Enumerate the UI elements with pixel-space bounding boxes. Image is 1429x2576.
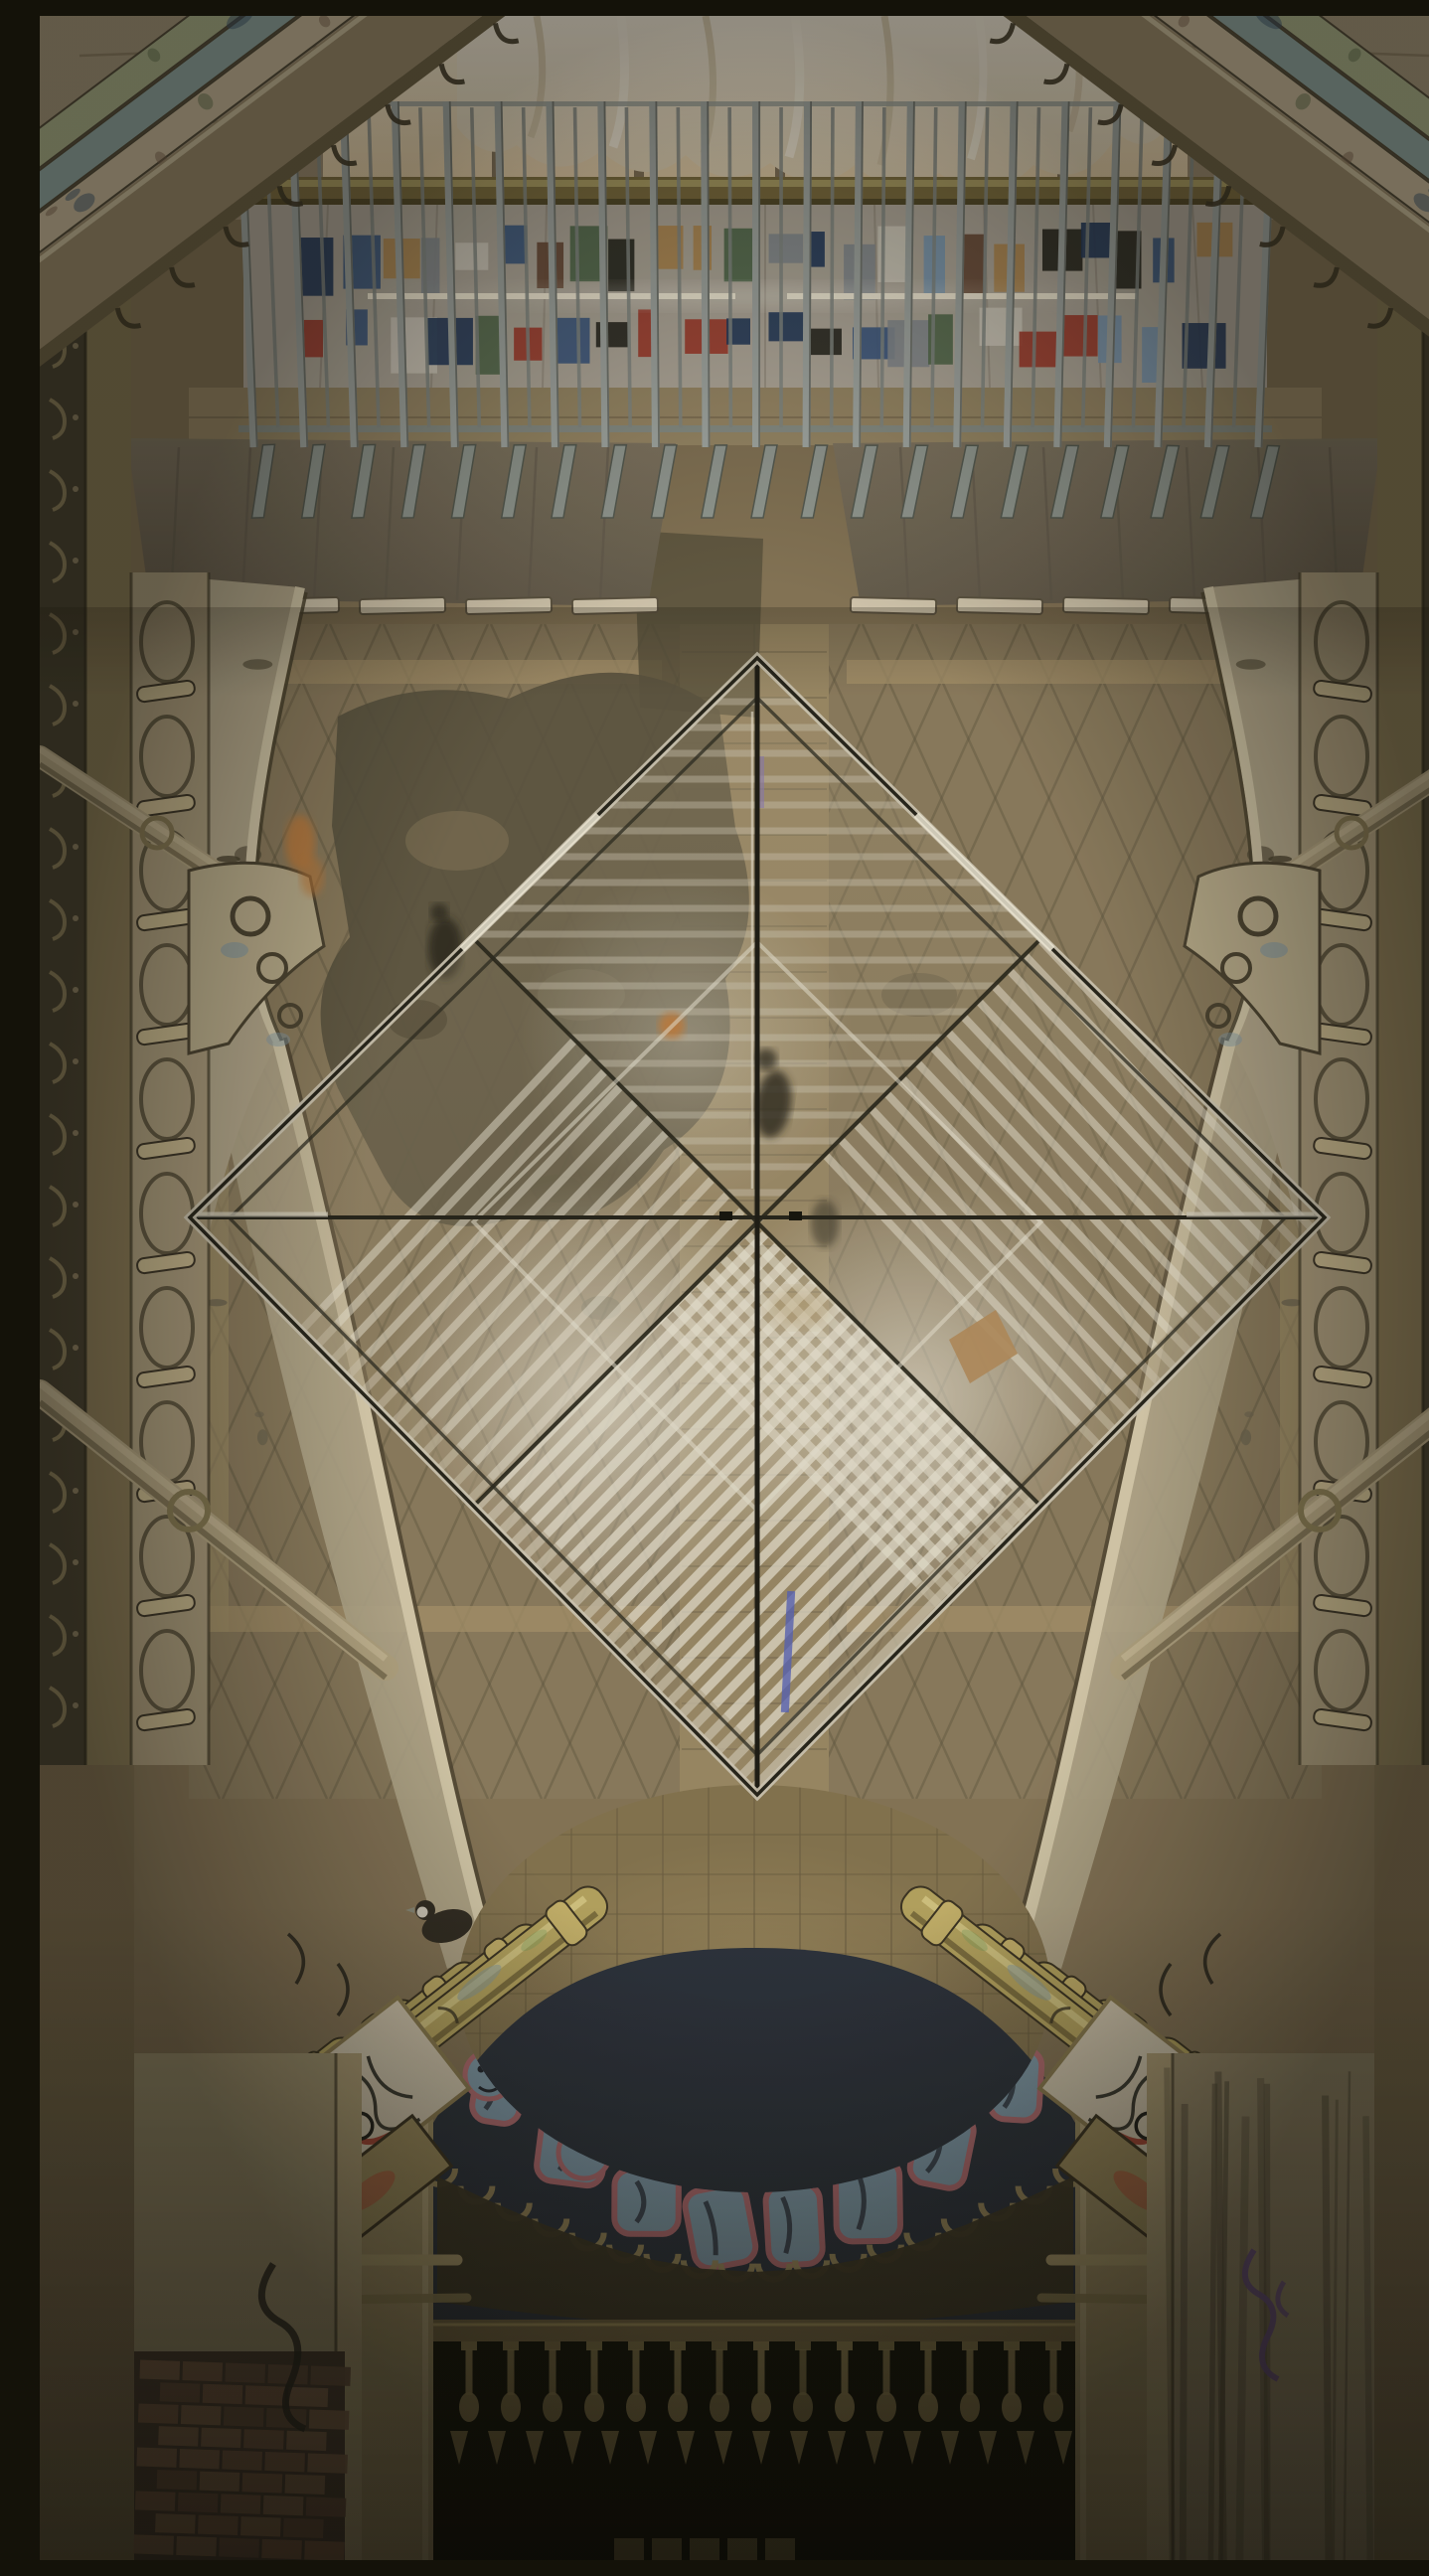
photo-frame: Low-angle photograph looking up through … [40,16,1429,2560]
sepia-cast [40,16,1429,2560]
atrium-photo [40,16,1429,2560]
photo-overlays [40,16,1429,2560]
